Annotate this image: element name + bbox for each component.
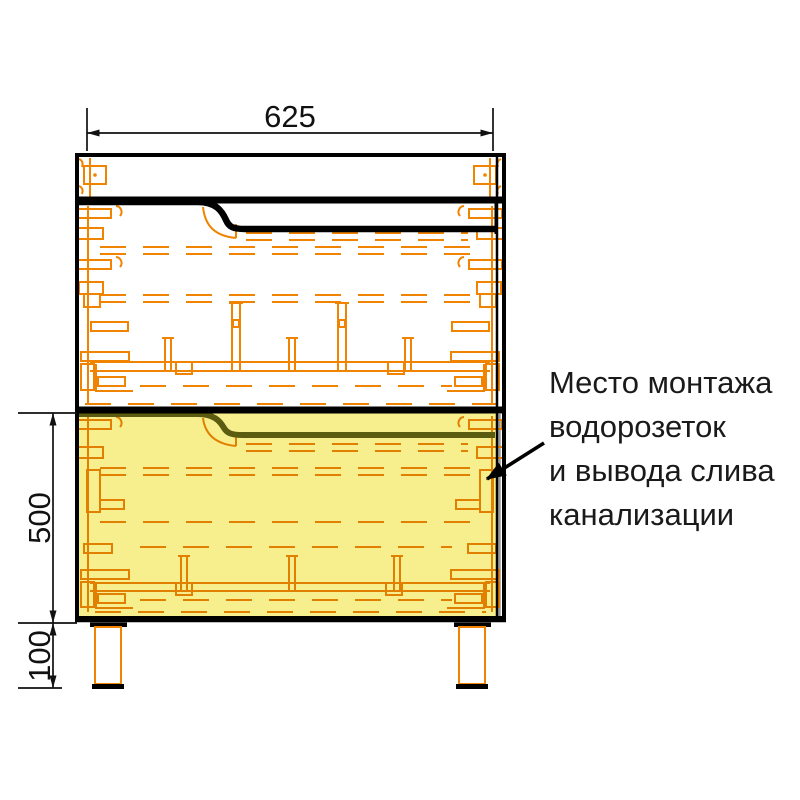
annotation-line: водорозеток [549, 405, 775, 449]
dimension-100-label: 100 [22, 630, 57, 682]
top-rail-hardware [79, 158, 501, 197]
annotation-line: канализации [549, 493, 775, 537]
upper-drawer-front-profile [79, 202, 496, 229]
annotation-text: Место монтажа водорозеток и вывода слива… [549, 361, 775, 537]
leg [90, 623, 127, 690]
dimension-plumbing-zone-height: 500 [18, 413, 77, 623]
legs [90, 623, 491, 690]
annotation-line: Место монтажа [549, 361, 775, 405]
dimension-width: 625 [87, 99, 493, 151]
dimension-legs-height: 100 [18, 623, 62, 688]
upper-drawer-hardware [77, 206, 503, 404]
technical-drawing-page: 625 500 100 Место монтажа водорозеток и … [0, 0, 800, 800]
annotation-line: и вывода слива [549, 449, 775, 493]
dimension-width-label: 625 [264, 99, 316, 134]
dimension-500-label: 500 [22, 492, 57, 544]
